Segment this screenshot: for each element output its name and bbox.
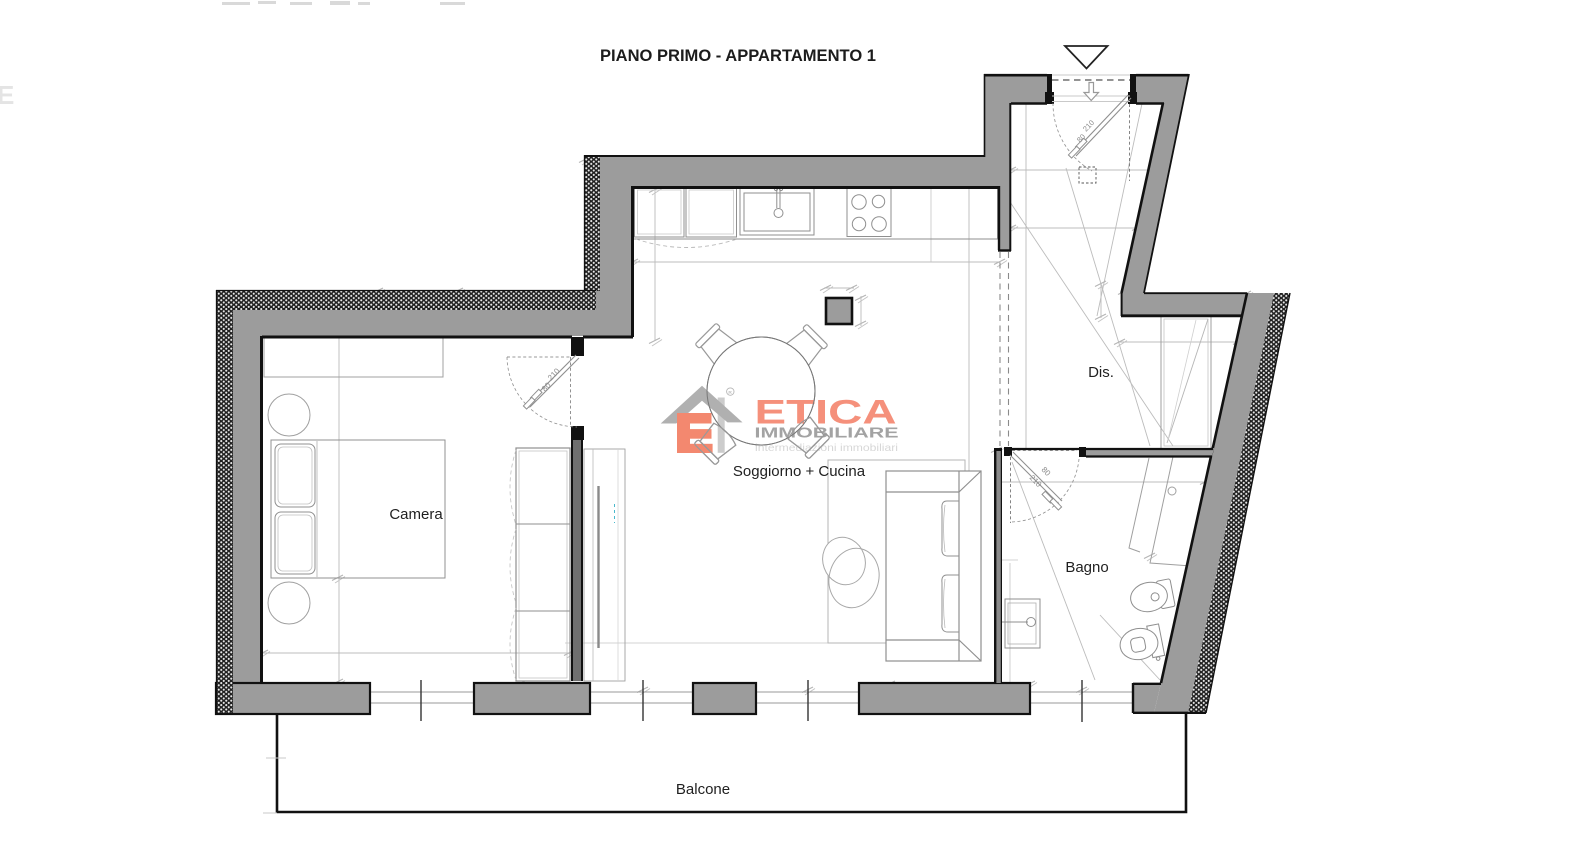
svg-text:R: R <box>728 390 732 396</box>
svg-text:intermediazioni immobiliari: intermediazioni immobiliari <box>755 442 898 454</box>
svg-text:Soggiorno + Cucina: Soggiorno + Cucina <box>733 463 866 480</box>
svg-text:Camera: Camera <box>389 506 443 523</box>
svg-text:PIANO PRIMO - APPARTAMENTO 1: PIANO PRIMO - APPARTAMENTO 1 <box>600 46 876 65</box>
svg-text:Bagno: Bagno <box>1065 559 1108 576</box>
svg-text:Balcone: Balcone <box>676 781 730 798</box>
svg-text:Dis.: Dis. <box>1088 364 1114 381</box>
svg-text:E: E <box>0 80 14 110</box>
svg-text:IMMOBILIARE: IMMOBILIARE <box>755 425 899 442</box>
